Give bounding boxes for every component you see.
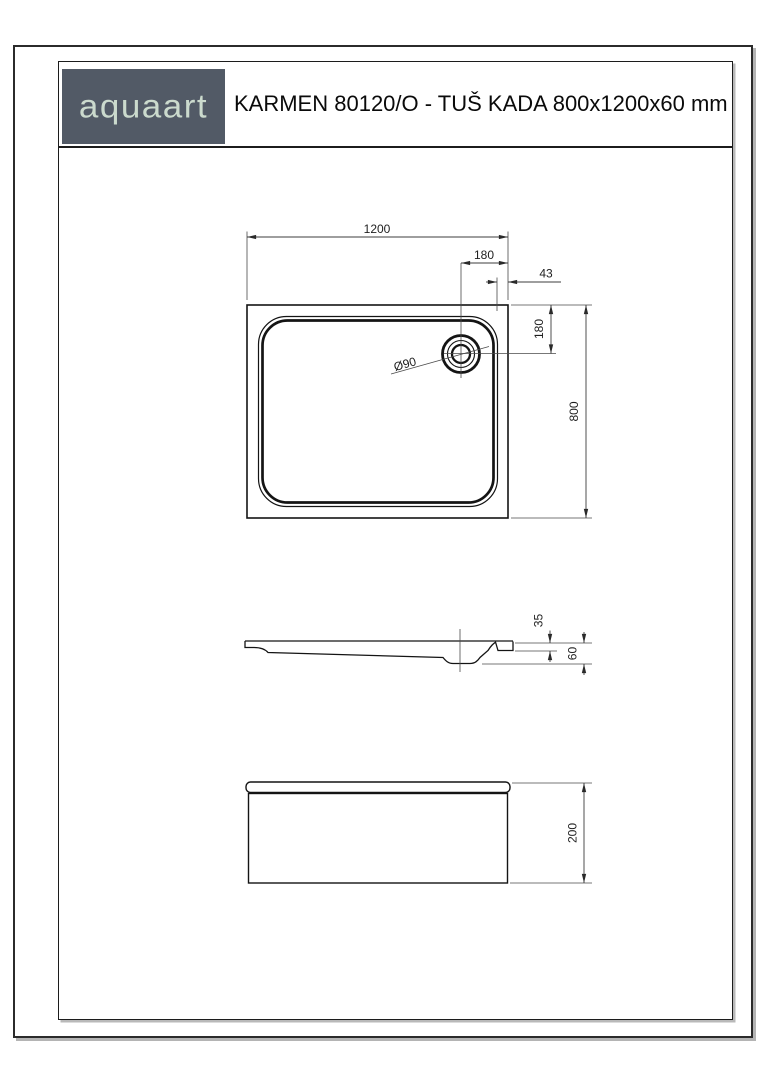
top-view: Ø90 1200 180 43 180 800 — [247, 222, 592, 518]
spec-sheet-page: aquaart KARMEN 80120/O - TUŠ KADA 800x12… — [0, 0, 768, 1086]
dim-label-43: 43 — [539, 267, 553, 281]
dim-label-800: 800 — [567, 401, 581, 421]
side-view: 35 60 — [245, 614, 592, 675]
drain-diameter-label: Ø90 — [392, 354, 418, 374]
front-view: 200 — [246, 782, 592, 883]
dim-label-180-v: 180 — [532, 319, 546, 339]
technical-drawing: Ø90 1200 180 43 180 800 — [0, 0, 768, 1086]
dim-label-35: 35 — [532, 614, 546, 628]
basin-inner-edge — [263, 321, 494, 503]
dim-label-200: 200 — [566, 823, 580, 843]
front-panel — [249, 794, 508, 884]
dim-label-1200: 1200 — [364, 222, 391, 236]
side-profile — [245, 641, 513, 664]
dim-label-180-h: 180 — [474, 248, 494, 262]
dim-label-60: 60 — [566, 647, 580, 661]
front-rim — [246, 782, 510, 793]
